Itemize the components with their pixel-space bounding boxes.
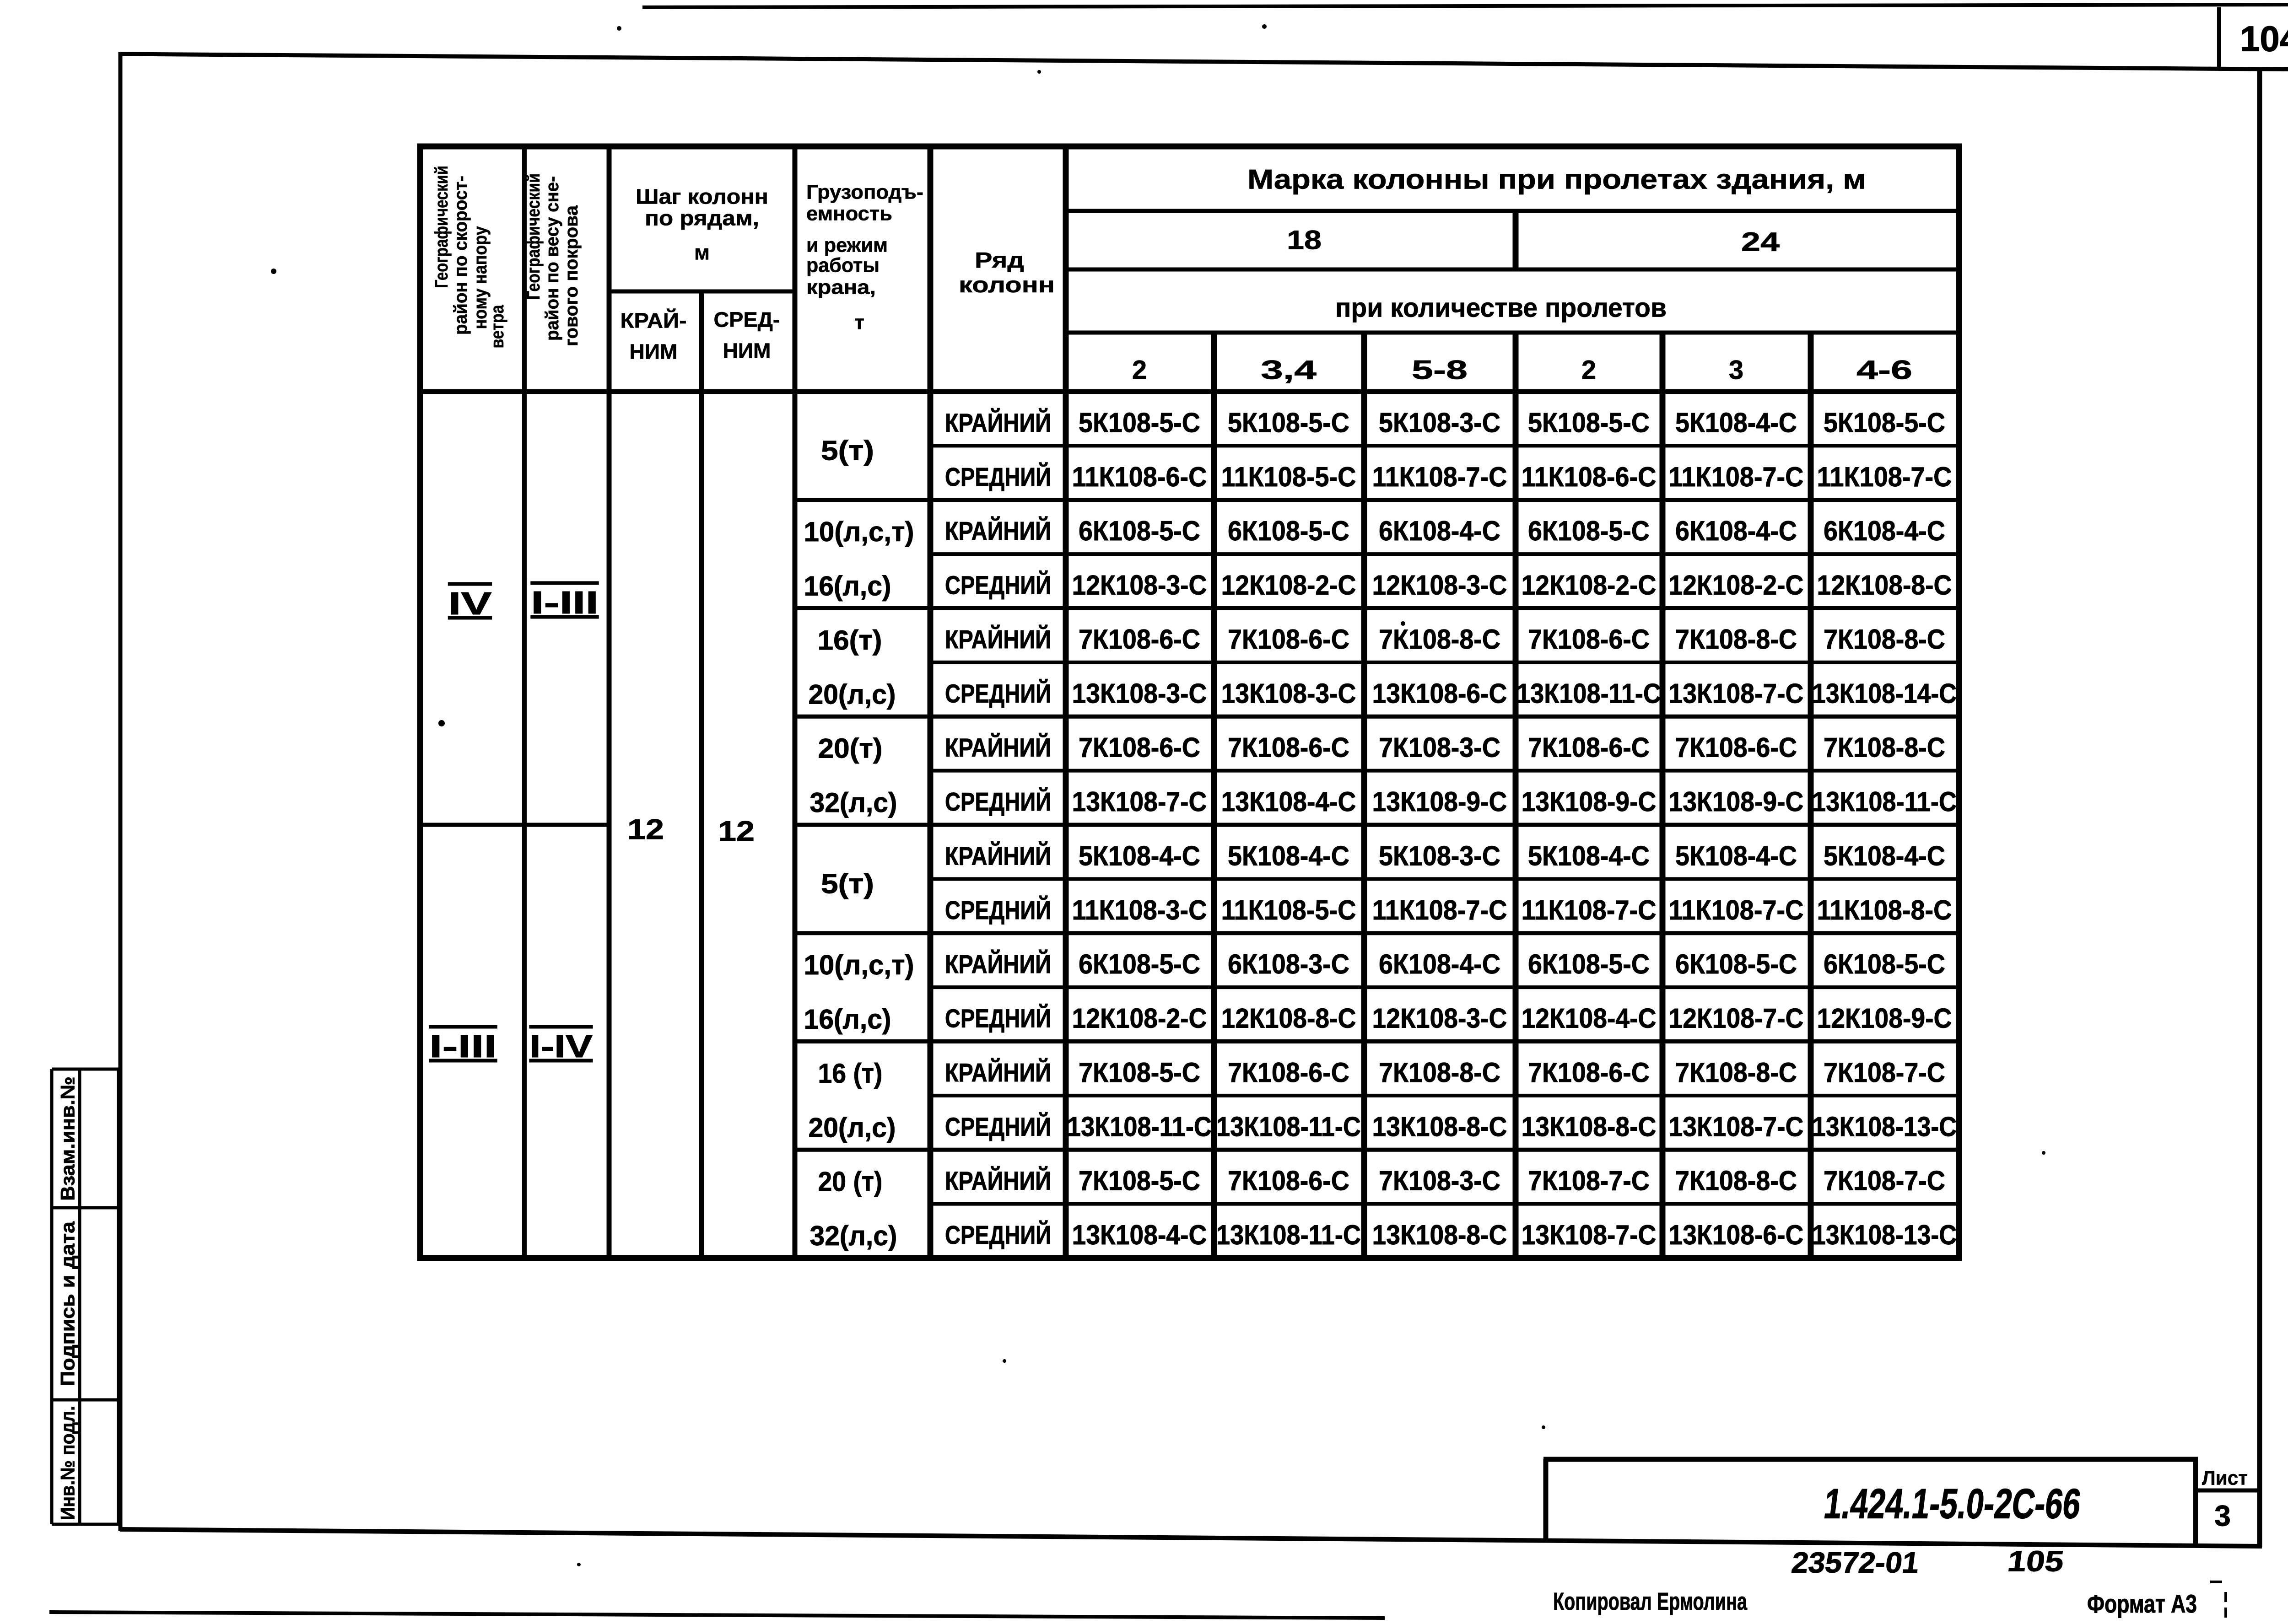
svg-text:4-6: 4-6 (1856, 355, 1912, 385)
svg-text:12К108-9-С: 12К108-9-С (1817, 1003, 1952, 1034)
svg-text:20(л,с): 20(л,с) (809, 1112, 896, 1143)
svg-text:5К108-4-С: 5К108-4-С (1228, 841, 1349, 871)
svg-text:ветра: ветра (487, 305, 507, 349)
svg-text:СРЕДНИЙ: СРЕДНИЙ (945, 895, 1051, 925)
svg-text:КРАЙНИЙ: КРАЙНИЙ (945, 1058, 1051, 1087)
svg-text:7К108-6-С: 7К108-6-С (1228, 1166, 1349, 1196)
svg-text:12: 12 (718, 816, 755, 847)
svg-text:Географический: Географический (523, 173, 544, 300)
svg-text:13К108-9-С: 13К108-9-С (1669, 786, 1804, 817)
svg-text:КРАЙНИЙ: КРАЙНИЙ (945, 408, 1051, 437)
svg-text:13К108-4-С: 13К108-4-С (1072, 1220, 1207, 1250)
svg-text:Марка колонны при пролетах зда: Марка колонны при пролетах здания, м (1247, 164, 1866, 194)
svg-text:2: 2 (1581, 355, 1596, 385)
svg-text:13К108-6-С: 13К108-6-С (1669, 1220, 1804, 1250)
svg-text:КРАЙНИЙ: КРАЙНИЙ (945, 1166, 1051, 1196)
svg-text:13К108-11-С: 13К108-11-С (1216, 1220, 1361, 1250)
svg-text:20(т): 20(т) (818, 733, 883, 764)
svg-text:КРАЙНИЙ: КРАЙНИЙ (945, 949, 1051, 979)
svg-text:5К108-3-С: 5К108-3-С (1379, 408, 1500, 438)
svg-text:7К108-6-С: 7К108-6-С (1675, 732, 1797, 763)
svg-text:13К108-7-С: 13К108-7-С (1669, 678, 1804, 709)
svg-text:7К108-5-С: 7К108-5-С (1079, 1166, 1200, 1196)
svg-text:7К108-6-С: 7К108-6-С (1528, 732, 1650, 763)
svg-text:11К108-7-С: 11К108-7-С (1669, 895, 1804, 925)
svg-text:СРЕДНИЙ: СРЕДНИЙ (945, 678, 1051, 708)
svg-text:Географический: Географический (432, 166, 452, 288)
svg-text:5К108-5-С: 5К108-5-С (1824, 408, 1945, 438)
svg-text:2: 2 (1132, 355, 1147, 385)
svg-text:11К108-5-С: 11К108-5-С (1221, 462, 1356, 492)
svg-text:6К108-5-С: 6К108-5-С (1675, 949, 1797, 979)
svg-text:СРЕДНИЙ: СРЕДНИЙ (945, 1220, 1051, 1250)
svg-text:10(л,с,т): 10(л,с,т) (804, 516, 914, 547)
svg-text:гового покрова: гового покрова (561, 205, 582, 346)
svg-text:16(т): 16(т) (818, 625, 882, 656)
svg-text:6К108-4-С: 6К108-4-С (1379, 949, 1500, 979)
svg-text:20(л,с): 20(л,с) (809, 679, 896, 710)
svg-text:7К108-6-С: 7К108-6-С (1228, 1057, 1349, 1088)
svg-text:Грузоподъ-: Грузоподъ- (806, 181, 923, 204)
svg-text:11К108-7-С: 11К108-7-С (1522, 895, 1657, 925)
svg-text:104: 104 (2240, 19, 2288, 59)
svg-text:7К108-8-С: 7К108-8-С (1379, 624, 1500, 655)
svg-text:13К108-3-С: 13К108-3-С (1221, 678, 1356, 709)
svg-text:7К108-6-С: 7К108-6-С (1228, 732, 1349, 763)
svg-text:и режим: и режим (806, 234, 888, 257)
svg-text:32(л,с): 32(л,с) (810, 1221, 897, 1251)
svg-text:7К108-8-С: 7К108-8-С (1824, 624, 1945, 655)
svg-text:т: т (854, 312, 864, 334)
svg-text:32(л,с): 32(л,с) (810, 787, 897, 818)
svg-text:16 (т): 16 (т) (818, 1058, 883, 1089)
svg-text:6К108-4-С: 6К108-4-С (1824, 516, 1945, 546)
svg-text:7К108-8-С: 7К108-8-С (1675, 624, 1797, 655)
svg-text:СРЕДНИЙ: СРЕДНИЙ (945, 462, 1051, 492)
svg-text:12К108-2-С: 12К108-2-С (1522, 570, 1657, 601)
svg-text:по рядам,: по рядам, (645, 206, 759, 230)
svg-text:5К108-3-С: 5К108-3-С (1379, 841, 1500, 871)
svg-text:12К108-3-С: 12К108-3-С (1372, 1003, 1507, 1034)
svg-text:Лист: Лист (2202, 1467, 2248, 1490)
svg-text:11К108-7-С: 11К108-7-С (1817, 462, 1952, 492)
svg-text:5К108-4-С: 5К108-4-С (1079, 841, 1200, 871)
svg-text:7К108-5-С: 7К108-5-С (1079, 1057, 1200, 1088)
svg-text:6К108-5-С: 6К108-5-С (1079, 516, 1200, 546)
svg-text:емность: емность (806, 203, 892, 225)
svg-text:7К108-7-С: 7К108-7-С (1528, 1166, 1650, 1196)
svg-text:13К108-9-С: 13К108-9-С (1372, 786, 1507, 817)
svg-text:при количестве пролетов: при количестве пролетов (1335, 293, 1667, 323)
svg-text:6К108-4-С: 6К108-4-С (1675, 516, 1797, 546)
svg-text:10(л,с,т): 10(л,с,т) (804, 950, 914, 980)
svg-text:3,4: 3,4 (1261, 355, 1317, 385)
svg-text:СРЕДНИЙ: СРЕДНИЙ (945, 787, 1051, 817)
svg-text:12: 12 (627, 814, 664, 845)
svg-text:5-8: 5-8 (1412, 355, 1468, 385)
svg-text:6К108-5-С: 6К108-5-С (1528, 949, 1650, 979)
svg-text:район по весу сне-: район по весу сне- (542, 176, 562, 341)
svg-text:13К108-9-С: 13К108-9-С (1522, 786, 1657, 817)
svg-text:I-III: I-III (429, 1028, 497, 1064)
svg-text:колонн: колонн (959, 273, 1055, 297)
svg-text:5(т): 5(т) (821, 869, 874, 899)
svg-text:7К108-8-С: 7К108-8-С (1675, 1057, 1797, 1088)
svg-text:крана,: крана, (806, 276, 876, 299)
svg-text:12К108-2-С: 12К108-2-С (1221, 570, 1356, 601)
svg-text:КРАЙНИЙ: КРАЙНИЙ (945, 624, 1051, 654)
svg-text:5К108-5-С: 5К108-5-С (1528, 408, 1650, 438)
svg-text:16(л,с): 16(л,с) (804, 571, 891, 602)
svg-text:7К108-3-С: 7К108-3-С (1379, 1166, 1500, 1196)
svg-text:7К108-3-С: 7К108-3-С (1379, 732, 1500, 763)
svg-text:НИМ: НИМ (723, 339, 771, 362)
svg-text:м: м (694, 240, 710, 264)
svg-text:13К108-11-С: 13К108-11-С (1516, 678, 1661, 709)
svg-text:СРЕДНИЙ: СРЕДНИЙ (945, 570, 1051, 600)
svg-text:КРАЙ-: КРАЙ- (621, 308, 687, 332)
svg-text:5К108-5-С: 5К108-5-С (1228, 408, 1349, 438)
svg-text:23572-01: 23572-01 (1790, 1546, 1921, 1579)
svg-text:12К108-2-С: 12К108-2-С (1669, 570, 1804, 601)
svg-text:13К108-11-С: 13К108-11-С (1216, 1111, 1361, 1142)
svg-text:13К108-6-С: 13К108-6-С (1372, 678, 1507, 709)
svg-text:СРЕДНИЙ: СРЕДНИЙ (945, 1004, 1051, 1033)
svg-text:13К108-7-С: 13К108-7-С (1072, 786, 1207, 817)
svg-text:6К108-5-С: 6К108-5-С (1528, 516, 1650, 546)
svg-text:КРАЙНИЙ: КРАЙНИЙ (945, 733, 1051, 763)
svg-text:Ряд: Ряд (975, 248, 1024, 273)
svg-text:7К108-8-С: 7К108-8-С (1379, 1057, 1500, 1088)
svg-text:12К108-8-С: 12К108-8-С (1817, 570, 1952, 601)
svg-text:1.424.1-5.0-2С-66: 1.424.1-5.0-2С-66 (1822, 1480, 2084, 1527)
svg-text:11К108-5-С: 11К108-5-С (1221, 895, 1356, 925)
svg-text:11К108-3-С: 11К108-3-С (1072, 895, 1207, 925)
svg-text:Шаг колонн: Шаг колонн (636, 184, 768, 208)
svg-text:12К108-4-С: 12К108-4-С (1522, 1003, 1657, 1034)
svg-text:5К108-4-С: 5К108-4-С (1824, 841, 1945, 871)
svg-text:6К108-5-С: 6К108-5-С (1228, 516, 1349, 546)
svg-text:I-IV: I-IV (529, 1028, 593, 1064)
svg-text:11К108-6-С: 11К108-6-С (1072, 462, 1207, 492)
svg-text:7К108-7-С: 7К108-7-С (1824, 1057, 1945, 1088)
svg-text:5К108-4-С: 5К108-4-С (1675, 841, 1797, 871)
svg-text:НИМ: НИМ (630, 339, 678, 363)
svg-text:12К108-2-С: 12К108-2-С (1072, 1003, 1207, 1034)
svg-text:6К108-5-С: 6К108-5-С (1824, 949, 1945, 979)
svg-text:6К108-5-С: 6К108-5-С (1079, 949, 1200, 979)
svg-text:16(л,с): 16(л,с) (804, 1004, 891, 1035)
svg-text:11К108-6-С: 11К108-6-С (1522, 462, 1657, 492)
svg-text:11К108-7-С: 11К108-7-С (1372, 462, 1507, 492)
svg-text:13К108-7-С: 13К108-7-С (1669, 1111, 1804, 1142)
svg-text:13К108-8-С: 13К108-8-С (1372, 1220, 1507, 1250)
svg-text:СРЕДНИЙ: СРЕДНИЙ (945, 1112, 1051, 1141)
svg-text:11К108-7-С: 11К108-7-С (1669, 462, 1804, 492)
svg-text:Копировал Ермолина: Копировал Ермолина (1553, 1588, 1748, 1615)
svg-text:I-III: I-III (531, 585, 599, 620)
svg-text:7К108-6-С: 7К108-6-С (1079, 624, 1200, 655)
svg-text:КРАЙНИЙ: КРАЙНИЙ (945, 516, 1051, 546)
svg-text:работы: работы (806, 254, 880, 277)
svg-text:район по скорост-: район по скорост- (451, 176, 471, 335)
svg-text:105: 105 (2006, 1545, 2066, 1578)
svg-text:13К108-14-С: 13К108-14-С (1812, 678, 1957, 709)
svg-text:5К108-5-С: 5К108-5-С (1079, 408, 1200, 438)
svg-text:12К108-3-С: 12К108-3-С (1072, 570, 1207, 601)
svg-text:7К108-6-С: 7К108-6-С (1528, 1057, 1650, 1088)
svg-text:11К108-7-С: 11К108-7-С (1372, 895, 1507, 925)
svg-text:7К108-6-С: 7К108-6-С (1079, 732, 1200, 763)
svg-text:Инв.№ подл.: Инв.№ подл. (57, 1406, 79, 1520)
svg-text:КРАЙНИЙ: КРАЙНИЙ (945, 841, 1051, 871)
svg-text:18: 18 (1287, 226, 1322, 255)
svg-text:7К108-8-С: 7К108-8-С (1675, 1166, 1797, 1196)
svg-text:6К108-3-С: 6К108-3-С (1228, 949, 1349, 979)
svg-text:IV: IV (448, 586, 492, 621)
svg-text:13К108-13-С: 13К108-13-С (1812, 1111, 1957, 1142)
svg-text:24: 24 (1741, 227, 1780, 257)
svg-text:13К108-7-С: 13К108-7-С (1522, 1220, 1657, 1250)
svg-text:13К108-11-С: 13К108-11-С (1067, 1111, 1212, 1142)
svg-text:13К108-13-С: 13К108-13-С (1812, 1220, 1957, 1250)
svg-text:Взам.инв.№: Взам.инв.№ (57, 1076, 79, 1201)
svg-text:СРЕД-: СРЕД- (714, 307, 780, 331)
svg-text:7К108-7-С: 7К108-7-С (1824, 1166, 1945, 1196)
svg-text:13К108-8-С: 13К108-8-С (1522, 1111, 1657, 1142)
svg-text:12К108-3-С: 12К108-3-С (1372, 570, 1507, 601)
svg-text:11К108-8-С: 11К108-8-С (1817, 895, 1952, 925)
svg-text:13К108-4-С: 13К108-4-С (1221, 786, 1356, 817)
svg-text:12К108-8-С: 12К108-8-С (1221, 1003, 1356, 1034)
svg-text:5К108-4-С: 5К108-4-С (1675, 408, 1797, 438)
svg-text:Формат А3: Формат А3 (2087, 1589, 2197, 1618)
svg-text:12К108-7-С: 12К108-7-С (1669, 1003, 1804, 1034)
svg-text:7К108-6-С: 7К108-6-С (1228, 624, 1349, 655)
svg-text:Подпись и дата: Подпись и дата (57, 1221, 79, 1386)
svg-text:7К108-8-С: 7К108-8-С (1824, 732, 1945, 763)
svg-text:7К108-6-С: 7К108-6-С (1528, 624, 1650, 655)
svg-text:5(т): 5(т) (821, 436, 874, 466)
svg-text:13К108-3-С: 13К108-3-С (1072, 678, 1207, 709)
svg-text:3: 3 (2214, 1500, 2231, 1533)
svg-text:5К108-4-С: 5К108-4-С (1528, 841, 1650, 871)
svg-text:13К108-8-С: 13К108-8-С (1372, 1111, 1507, 1142)
svg-text:13К108-11-С: 13К108-11-С (1812, 786, 1957, 817)
svg-text:20 (т): 20 (т) (818, 1167, 883, 1197)
svg-text:3: 3 (1729, 355, 1743, 385)
svg-text:6К108-4-С: 6К108-4-С (1379, 516, 1500, 546)
